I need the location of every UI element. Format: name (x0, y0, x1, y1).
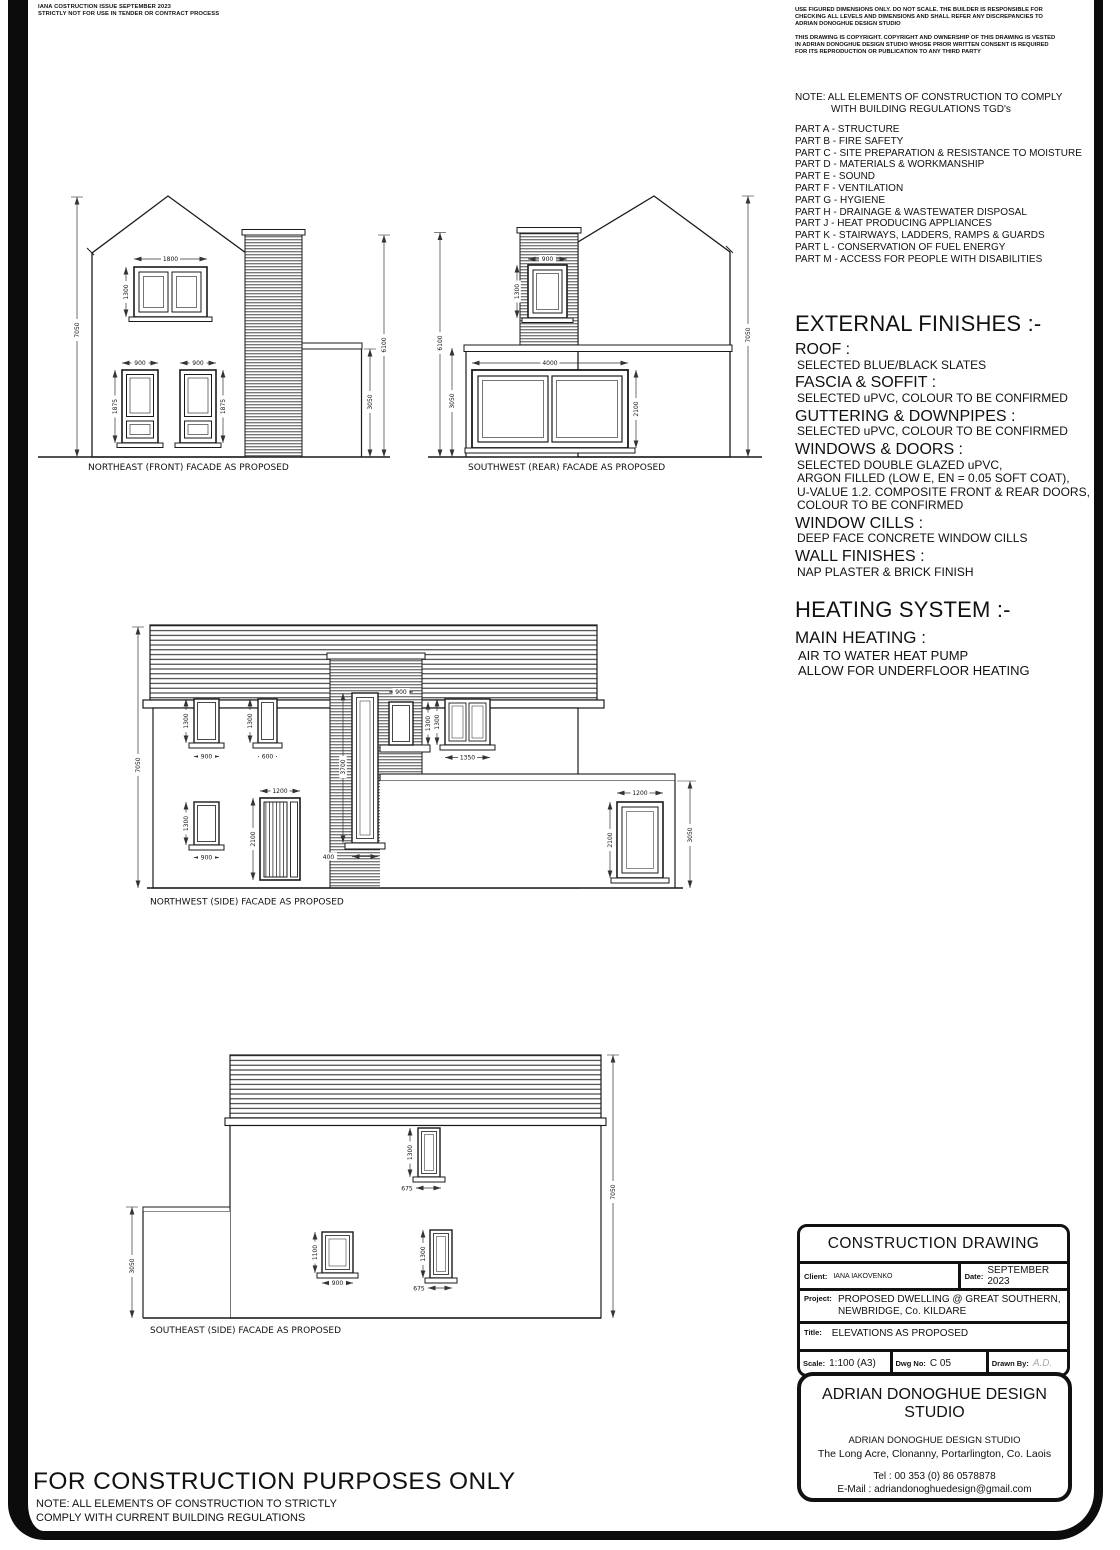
external-finishes-section: EXTERNAL FINISHES :- ROOF : SELECTED BLU… (795, 311, 1095, 579)
dim-label: 675 (401, 1186, 413, 1193)
dim-label: 2100 (633, 401, 640, 416)
part-item: PART F - VENTILATION (795, 183, 1082, 195)
part-item: PART K - STAIRWAYS, LADDERS, RAMPS & GUA… (795, 230, 1082, 242)
drawn-by-value: A.D. (1033, 1358, 1052, 1369)
dim-label: 7050 (745, 327, 752, 342)
windows-value: SELECTED DOUBLE GLAZED uPVC, (795, 459, 1095, 472)
windows-value: COLOUR TO BE CONFIRMED (795, 499, 1095, 512)
dim-label: 1300 (420, 1246, 427, 1261)
disclaimer-paragraph-2: THIS DRAWING IS COPYRIGHT. COPYRIGHT AND… (795, 35, 1057, 56)
date-value: SEPTEMBER 2023 (987, 1265, 1067, 1287)
dim-label: 1800 (163, 256, 178, 263)
dim-label: 1200 (272, 788, 287, 795)
studio-block: ADRIAN DONOGHUE DESIGN STUDIO ADRIAN DON… (797, 1372, 1072, 1502)
dim-label: 3050 (367, 394, 374, 409)
dim-label: 900 (395, 689, 407, 696)
part-item: PART D - MATERIALS & WORKMANSHIP (795, 159, 1082, 171)
dim-label: 7050 (135, 757, 142, 772)
wall-label: WALL FINISHES : (795, 548, 1095, 566)
cills-value: DEEP FACE CONCRETE WINDOW CILLS (795, 532, 1095, 545)
roof-label: ROOF : (795, 341, 1095, 359)
dim-label: 2100 (607, 832, 614, 847)
footer-note: NOTE: ALL ELEMENTS OF CONSTRUCTION TO ST… (36, 1498, 337, 1525)
heating-line: AIR TO WATER HEAT PUMP (795, 648, 1095, 663)
facade-label-northeast: NORTHEAST (FRONT) FACADE AS PROPOSED (88, 463, 289, 473)
dim-label: 6100 (437, 335, 444, 350)
part-item: PART G - HYGIENE (795, 195, 1082, 207)
dim-label: 1350 (460, 755, 475, 762)
project-label: Project: (804, 1294, 832, 1318)
dim-label: 1100 (312, 1245, 319, 1260)
dim-label: 4000 (542, 360, 557, 367)
dim-label: 6100 (381, 337, 388, 352)
roof-value: SELECTED BLUE/BLACK SLATES (795, 359, 1095, 372)
title-block-header: CONSTRUCTION DRAWING (800, 1227, 1067, 1264)
dim-label: 900 (542, 256, 554, 263)
facade-northeast-drawing: 7050 6100 3050 1800 1300 (30, 185, 400, 485)
dim-label: 3050 (449, 393, 456, 408)
dim-label: 900 (192, 360, 204, 367)
drawn-by-label: Drawn By: (992, 1359, 1029, 1368)
dim-label: 900 (201, 754, 213, 761)
studio-name: ADRIAN DONOGHUE DESIGN STUDIO (801, 1435, 1068, 1446)
dim-label: 1300 (183, 816, 190, 831)
dim-label: 1300 (425, 716, 432, 731)
facade-label-southeast: SOUTHEAST (SIDE) FACADE AS PROPOSED (150, 1326, 341, 1336)
facade-label-southwest: SOUTHWEST (REAR) FACADE AS PROPOSED (468, 463, 665, 473)
facade-southeast-drawing: 1300 675 1100 900 1300 675 (115, 1040, 725, 1340)
title-block-scale-cell: Scale: 1:100 (A3) (800, 1352, 893, 1374)
dim-label: 900 (134, 360, 146, 367)
part-item: PART J - HEAT PRODUCING APPLIANCES (795, 218, 1082, 230)
windows-label: WINDOWS & DOORS : (795, 441, 1095, 459)
title-block-drawn-cell: Drawn By: A.D. (989, 1352, 1067, 1374)
issue-note-line1: IANA COSTRUCTION ISSUE SEPTEMBER 2023 (38, 4, 219, 11)
studio-address: The Long Acre, Clonanny, Portarlington, … (801, 1448, 1068, 1460)
dim-label: 600 (262, 754, 274, 761)
dim-label: 1300 (434, 714, 441, 729)
dwg-no-label: Dwg No: (896, 1359, 926, 1368)
dim-label: 1875 (220, 399, 227, 414)
part-item: PART E - SOUND (795, 171, 1082, 183)
dwg-no-value: C 05 (930, 1358, 951, 1369)
facade-northwest-drawing: 3700 400 1300 900 1300 600 (125, 615, 725, 915)
studio-telephone: Tel : 00 353 (0) 86 0578878 (801, 1471, 1068, 1482)
regulations-note-line2: WITH BUILDING REGULATIONS TGD's (795, 104, 1062, 116)
heating-section: HEATING SYSTEM :- MAIN HEATING : AIR TO … (795, 597, 1095, 678)
dim-label: 675 (413, 1286, 425, 1293)
footer-note-line2: COMPLY WITH CURRENT BUILDING REGULATIONS (36, 1512, 337, 1526)
scale-label: Scale: (803, 1359, 825, 1368)
sw-big-window: 4000 2100 (465, 359, 640, 453)
dim-label: 1300 (123, 284, 130, 299)
fascia-value: SELECTED uPVC, COLOUR TO BE CONFIRMED (795, 392, 1095, 405)
issue-note: IANA COSTRUCTION ISSUE SEPTEMBER 2023 ST… (38, 4, 219, 18)
facade-label-northwest: NORTHWEST (SIDE) FACADE AS PROPOSED (150, 898, 344, 908)
gutter-label: GUTTERING & DOWNPIPES : (795, 408, 1095, 426)
issue-note-line2: STRICTLY NOT FOR USE IN TENDER OR CONTRA… (38, 11, 219, 18)
dim-label: 1300 (247, 713, 254, 728)
part-item: PART A - STRUCTURE (795, 124, 1082, 136)
disclaimer-paragraph-1: USE FIGURED DIMENSIONS ONLY. DO NOT SCAL… (795, 7, 1057, 28)
external-finishes-heading: EXTERNAL FINISHES :- (795, 311, 1095, 337)
dim-label: 400 (323, 854, 335, 861)
windows-value: U-VALUE 1.2. COMPOSITE FRONT & REAR DOOR… (795, 486, 1095, 499)
project-value-line1: PROPOSED DWELLING @ GREAT SOUTHERN, (838, 1294, 1061, 1306)
heating-line: ALLOW FOR UNDERFLOOR HEATING (795, 663, 1095, 678)
part-item: PART B - FIRE SAFETY (795, 136, 1082, 148)
studio-email: E-Mail : adriandonoghuedesign@gmail.com (801, 1484, 1068, 1495)
dim-label: 7050 (610, 1184, 617, 1199)
title-block-title-cell: Title: ELEVATIONS AS PROPOSED (800, 1324, 1067, 1352)
title-label: Title: (804, 1328, 822, 1339)
part-item: PART M - ACCESS FOR PEOPLE WITH DISABILI… (795, 254, 1082, 266)
title-block-project-cell: Project: PROPOSED DWELLING @ GREAT SOUTH… (800, 1291, 1067, 1324)
dim-label: 900 (201, 855, 213, 862)
dim-label: 3050 (687, 827, 694, 842)
dim-label: 1875 (112, 399, 119, 414)
title-value: ELEVATIONS AS PROPOSED (832, 1328, 968, 1339)
dim-label: 1300 (514, 284, 521, 299)
date-label: Date: (965, 1272, 984, 1281)
dim-label: 2100 (250, 831, 257, 846)
part-item: PART H - DRAINAGE & WASTEWATER DISPOSAL (795, 207, 1082, 219)
title-block-dwg-cell: Dwg No: C 05 (893, 1352, 989, 1374)
windows-value: ARGON FILLED (LOW E, EN = 0.05 SOFT COAT… (795, 472, 1095, 485)
title-block-date-cell: Date: SEPTEMBER 2023 (961, 1264, 1067, 1288)
footer-note-line1: NOTE: ALL ELEMENTS OF CONSTRUCTION TO ST… (36, 1498, 337, 1512)
dim-label: 3050 (129, 1258, 136, 1273)
title-block-client-cell: Client: IANA IAKOVENKO (800, 1264, 961, 1288)
title-block: CONSTRUCTION DRAWING Client: IANA IAKOVE… (797, 1224, 1070, 1377)
client-value: IANA IAKOVENKO (833, 1273, 892, 1280)
scale-value: 1:100 (A3) (829, 1358, 876, 1369)
regulations-note: NOTE: ALL ELEMENTS OF CONSTRUCTION TO CO… (795, 92, 1062, 115)
dim-label: 1300 (407, 1145, 414, 1160)
heating-sub: MAIN HEATING : (795, 628, 1095, 648)
part-item: PART C - SITE PREPARATION & RESISTANCE T… (795, 148, 1082, 160)
facade-southwest-drawing: 900 1300 4000 2100 6100 3050 70 (420, 185, 770, 485)
regulations-note-line1: NOTE: ALL ELEMENTS OF CONSTRUCTION TO CO… (795, 92, 1062, 104)
footer-title: FOR CONSTRUCTION PURPOSES ONLY (33, 1468, 516, 1496)
dim-label: 1300 (183, 713, 190, 728)
dim-label: 1200 (632, 790, 647, 797)
disclaimer: USE FIGURED DIMENSIONS ONLY. DO NOT SCAL… (795, 7, 1057, 63)
drawing-sheet: IANA COSTRUCTION ISSUE SEPTEMBER 2023 ST… (0, 0, 1120, 1550)
dim-label: 3700 (340, 759, 347, 774)
regulation-parts-list: PART A - STRUCTURE PART B - FIRE SAFETY … (795, 124, 1082, 266)
project-value-line2: NEWBRIDGE, Co. KILDARE (838, 1306, 1061, 1318)
dim-label: 7050 (74, 322, 81, 337)
dim-label: 900 (332, 1280, 344, 1287)
studio-heading: ADRIAN DONOGHUE DESIGN STUDIO (801, 1386, 1068, 1422)
gutter-value: SELECTED uPVC, COLOUR TO BE CONFIRMED (795, 425, 1095, 438)
fascia-label: FASCIA & SOFFIT : (795, 374, 1095, 392)
wall-value: NAP PLASTER & BRICK FINISH (795, 566, 1095, 579)
cills-label: WINDOW CILLS : (795, 515, 1095, 533)
heating-heading: HEATING SYSTEM :- (795, 597, 1095, 623)
client-label: Client: (804, 1272, 827, 1281)
part-item: PART L - CONSERVATION OF FUEL ENERGY (795, 242, 1082, 254)
